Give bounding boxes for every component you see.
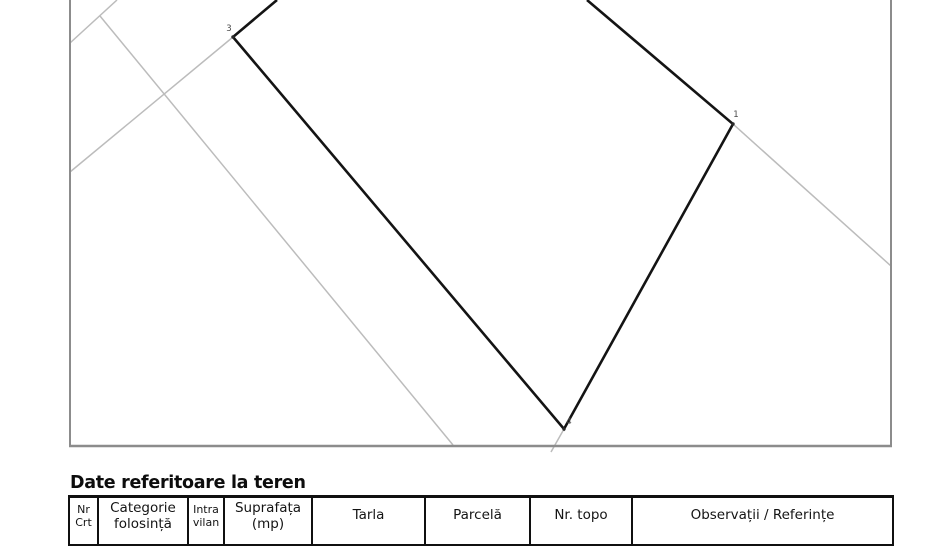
neighbor-parcel-line xyxy=(70,0,117,43)
col-header-parcela: Parcelă xyxy=(425,497,530,546)
vertex-label: 3 xyxy=(226,24,231,34)
parcel-boundary xyxy=(233,0,733,429)
col-header-suprafata: Suprafața (mp) xyxy=(224,497,312,546)
vertex-marker xyxy=(231,35,234,38)
vertex-marker xyxy=(562,427,565,430)
cadastral-plan: 341 xyxy=(0,0,938,460)
col-header-observatii-referinte: Observații / Referințe xyxy=(632,497,893,546)
col-header-tarla: Tarla xyxy=(312,497,425,546)
vertex-label: 4 xyxy=(566,417,571,427)
neighbor-parcel-line xyxy=(70,37,233,172)
section-title: Date referitoare la teren xyxy=(70,473,306,493)
col-header-nr-crt: Nr Crt xyxy=(69,497,98,546)
vertex-label: 1 xyxy=(733,110,738,120)
cadastral-plan-canvas: 341 xyxy=(0,0,938,460)
col-header-nr-topo: Nr. topo xyxy=(530,497,632,546)
neighbor-parcel-line xyxy=(100,16,453,445)
table-header-row: Nr Crt Categorie folosință Intra vilan S… xyxy=(69,497,893,546)
vertex-marker xyxy=(731,122,734,125)
col-header-categorie-folosinta: Categorie folosință xyxy=(98,497,188,546)
col-header-intravilan: Intra vilan xyxy=(188,497,224,546)
land-data-table: Nr Crt Categorie folosință Intra vilan S… xyxy=(68,495,894,546)
neighbor-parcel-line xyxy=(551,429,564,452)
neighbor-parcel-line xyxy=(733,124,891,266)
